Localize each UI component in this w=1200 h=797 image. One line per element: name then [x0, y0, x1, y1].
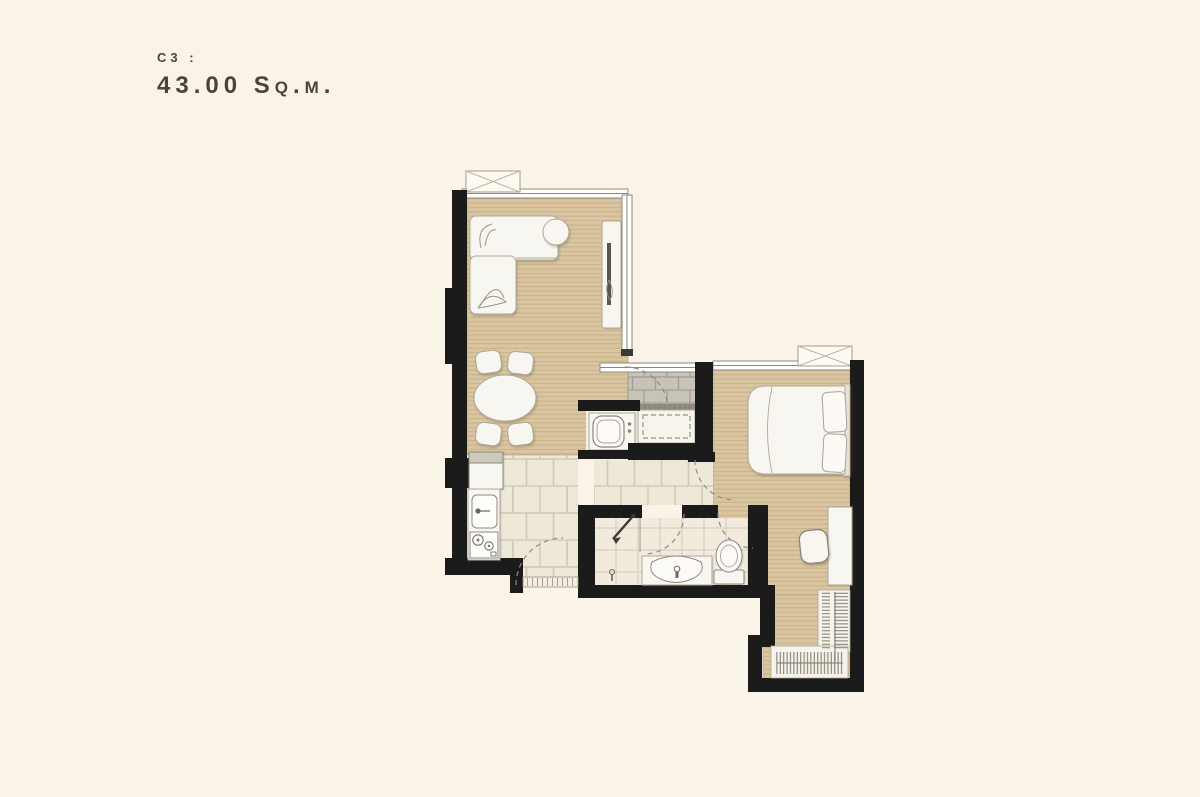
dining-table	[474, 375, 536, 421]
floorplan-drawing	[0, 0, 1200, 792]
entrance-threshold	[523, 577, 578, 587]
living-room-side-window	[621, 195, 633, 356]
bed	[748, 384, 850, 476]
desk	[828, 507, 852, 585]
washbasin-icon	[642, 556, 712, 585]
tv-console	[602, 221, 621, 328]
dining-chair	[475, 421, 503, 446]
ac-unit-icon	[466, 171, 520, 192]
utility-counter	[638, 410, 695, 443]
toilet-icon	[714, 540, 744, 584]
ac-unit-icon	[798, 346, 852, 366]
unit-title: C3 : 43.00 Sq.m.	[157, 50, 335, 100]
dining-chair	[507, 351, 534, 376]
floorplan-page: C3 : 43.00 Sq.m.	[0, 0, 1200, 792]
dining-chair	[475, 349, 503, 374]
fridge-icon	[469, 452, 503, 489]
unit-area-label: 43.00 Sq.m.	[157, 72, 335, 100]
kitchen-units	[468, 452, 503, 560]
side-table	[543, 219, 569, 245]
pillow	[822, 391, 847, 432]
pillow	[822, 433, 847, 472]
balcony-window	[600, 363, 696, 372]
dining-chair	[507, 421, 534, 446]
stove-icon	[470, 532, 498, 558]
sink-icon	[472, 495, 497, 528]
unit-code-label: C3 :	[157, 50, 335, 65]
desk-chair	[798, 529, 829, 565]
corridor-floor	[594, 460, 713, 505]
